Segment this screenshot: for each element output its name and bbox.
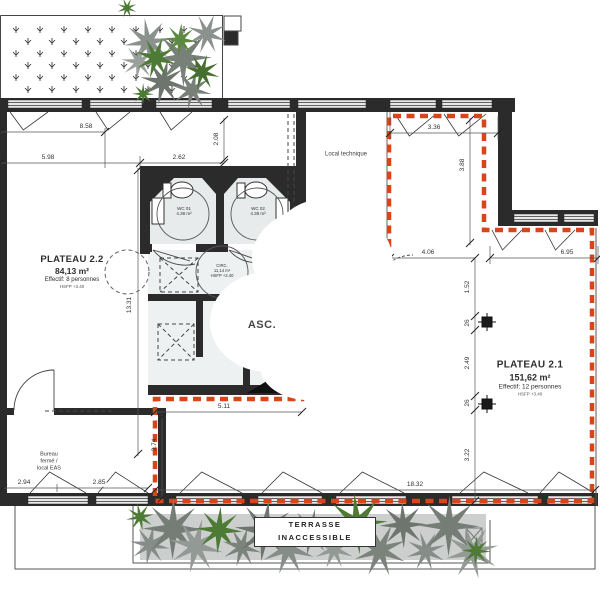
dim-1-52: 1.52 <box>465 280 472 295</box>
dim-2-49: 2.49 <box>465 356 472 371</box>
dim-3-88: 3.88 <box>460 158 467 173</box>
dim-5-11: 5.11 <box>217 404 231 411</box>
floor-plan-drawing <box>0 0 600 600</box>
plateau22-label: PLATEAU 2.2 84,13 m² Effectif: 8 personn… <box>40 254 103 290</box>
elevator-label: ASC. <box>248 319 276 333</box>
dim-3-22: 3.22 <box>465 448 472 463</box>
plateau21-label: PLATEAU 2.1 151,62 m² Effectif: 12 perso… <box>497 359 563 397</box>
dim-2-94: 2.94 <box>17 480 32 487</box>
dim-8-58: 8.58 <box>79 124 94 131</box>
wc2-label: WC 024.38 m² <box>250 206 265 216</box>
dim-5-98: 5.98 <box>41 155 56 162</box>
circulation-label: CIRC.11,14 m²HSFP +3.40 <box>211 264 234 278</box>
dim-2-85: 2.85 <box>92 480 107 487</box>
dim-4-06: 4.06 <box>421 250 436 257</box>
dim-2-62: 2.62 <box>172 155 187 162</box>
dim-2-08: 2.08 <box>214 132 221 147</box>
dim-3-74: 3.74 <box>152 438 159 453</box>
bureau-label: Bureau fermé / local EAS <box>37 451 61 472</box>
dim-26-a: 26 <box>465 318 472 327</box>
structural-columns <box>478 313 496 413</box>
terrasse-inaccessible-label: TERRASSEINACCESSIBLE <box>254 517 376 547</box>
dim-13-31: 13.31 <box>127 296 134 314</box>
dim-3-36: 3.36 <box>427 125 442 132</box>
floor-plan-page: PLATEAU 2.2 84,13 m² Effectif: 8 personn… <box>0 0 600 600</box>
dim-6-95: 6.95 <box>560 250 575 257</box>
dim-18-32: 18.32 <box>406 482 424 489</box>
wc1-label: WC 014.38 m² <box>176 206 191 216</box>
dim-26-b: 26 <box>465 398 472 407</box>
local-technique-label: Local technique <box>325 151 367 159</box>
